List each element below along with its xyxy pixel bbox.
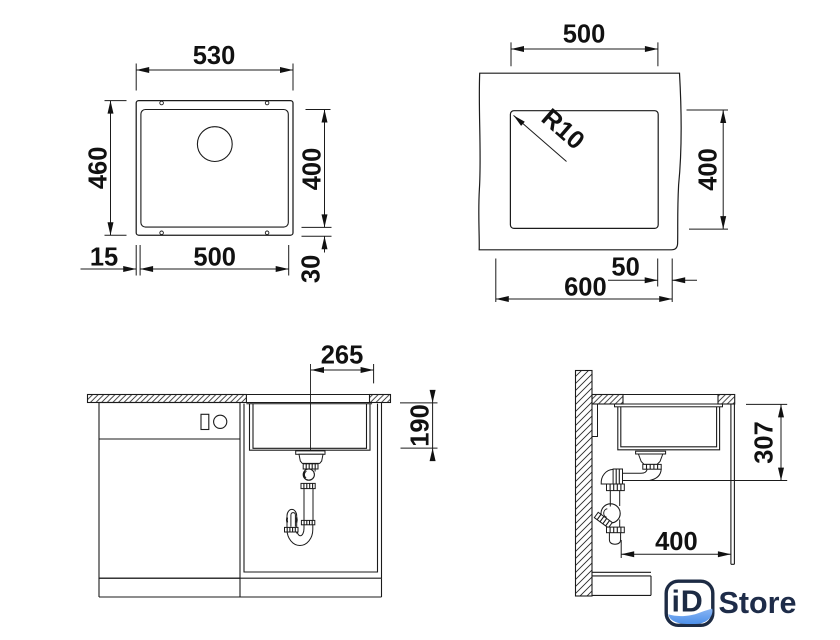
svg-text:530: 530 bbox=[193, 42, 236, 70]
svg-text:400: 400 bbox=[298, 148, 326, 191]
svg-text:400: 400 bbox=[694, 148, 722, 191]
svg-text:600: 600 bbox=[564, 274, 607, 302]
svg-text:307: 307 bbox=[751, 421, 779, 464]
svg-text:iD: iD bbox=[672, 585, 704, 619]
svg-text:15: 15 bbox=[90, 244, 118, 272]
svg-text:500: 500 bbox=[563, 21, 606, 49]
svg-text:400: 400 bbox=[655, 528, 698, 556]
svg-text:Store: Store bbox=[719, 586, 797, 620]
svg-text:30: 30 bbox=[298, 255, 326, 283]
svg-text:500: 500 bbox=[193, 244, 236, 272]
svg-text:460: 460 bbox=[85, 147, 113, 190]
svg-text:265: 265 bbox=[321, 341, 364, 369]
svg-text:50: 50 bbox=[611, 254, 639, 282]
svg-text:R10: R10 bbox=[536, 104, 590, 156]
svg-text:190: 190 bbox=[407, 404, 435, 447]
